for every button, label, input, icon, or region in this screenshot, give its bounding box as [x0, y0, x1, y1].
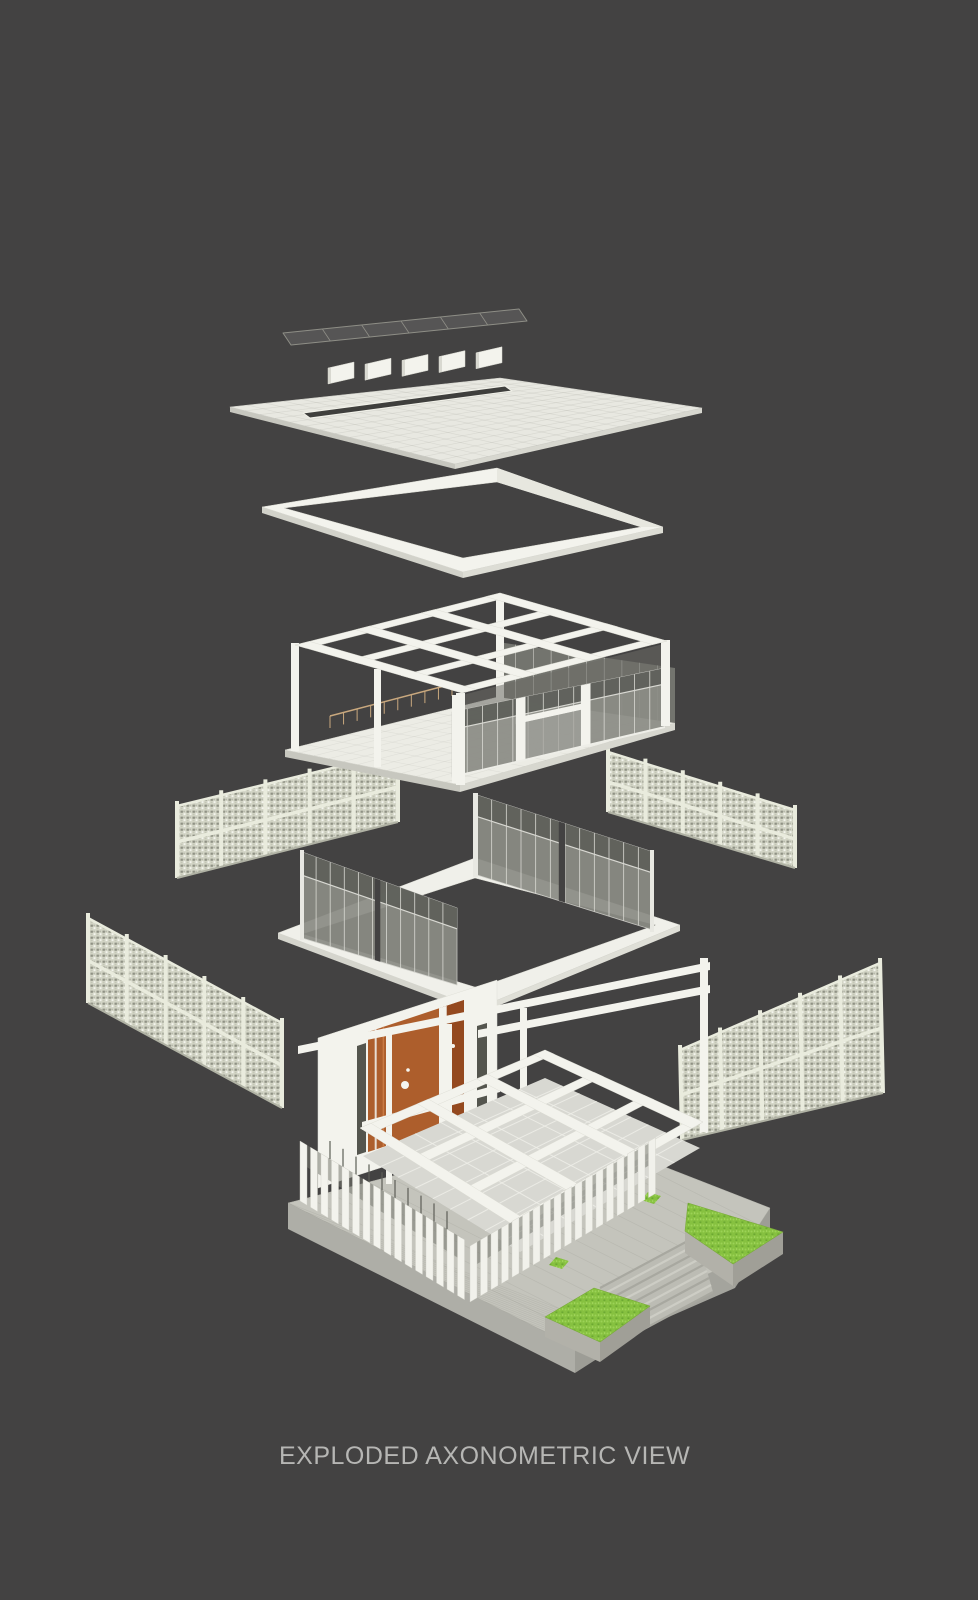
clerestory-panels: [328, 347, 502, 384]
exploded-axon-render: EXPLODED AXONOMETRIC VIEW: [0, 0, 978, 1600]
view-caption: EXPLODED AXONOMETRIC VIEW: [279, 1442, 690, 1471]
screen-lower-left: [88, 913, 282, 1108]
scene-svg: [0, 0, 978, 1600]
roof-slab: [230, 378, 702, 469]
parapet-ring: [262, 468, 663, 578]
skylight-strip: [283, 309, 527, 345]
screen-lower-right: [680, 958, 883, 1140]
